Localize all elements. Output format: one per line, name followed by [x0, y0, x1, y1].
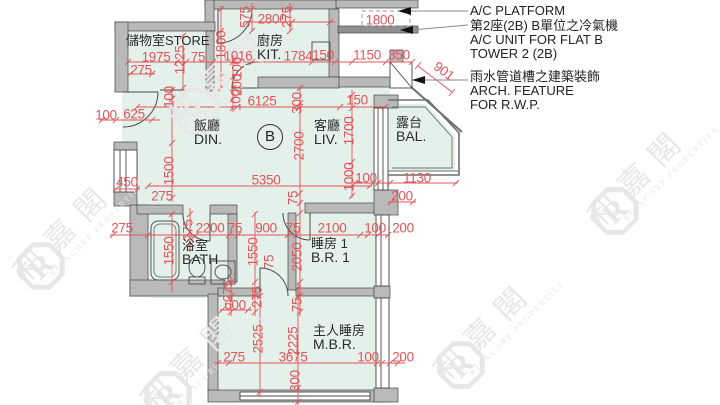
unit-label-badge: B [257, 124, 283, 150]
ac-unit-dashed-outline [362, 11, 410, 26]
arrow-arch-feature [412, 76, 425, 84]
floor-plan-page: R利嘉閣RICACORP PROPERTIESR利嘉閣RICACORP PROP… [0, 0, 720, 405]
ac-platform-slab [336, 0, 418, 8]
floor-plan-drawing [0, 0, 720, 405]
balcony-floor [390, 104, 455, 171]
arch-feature-rwp [390, 62, 412, 88]
